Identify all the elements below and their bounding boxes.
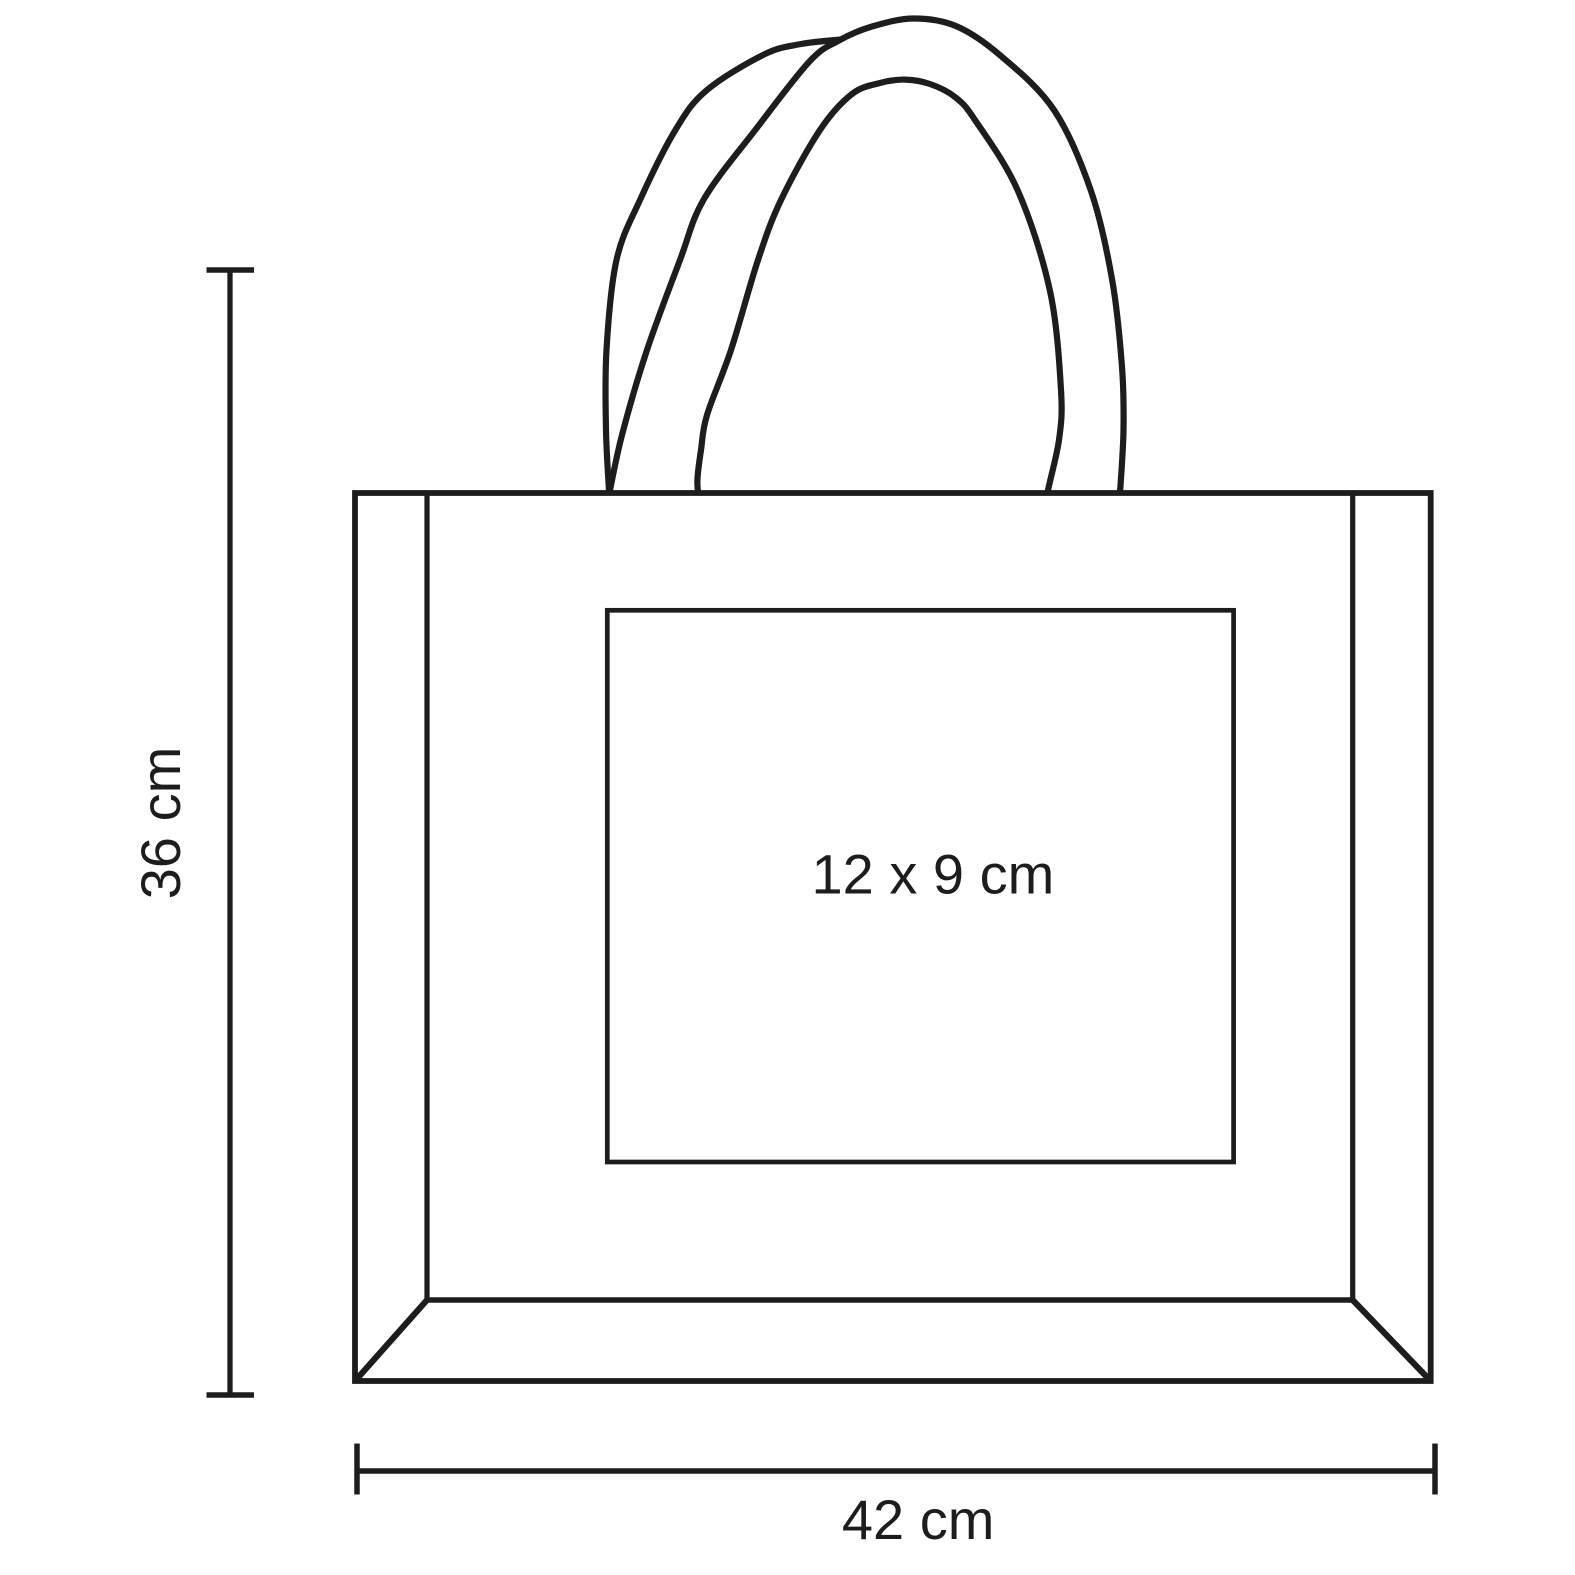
svg-text:12 x 9 cm: 12 x 9 cm	[812, 842, 1055, 905]
svg-text:36 cm: 36 cm	[129, 747, 192, 900]
svg-text:42 cm: 42 cm	[842, 1488, 995, 1551]
